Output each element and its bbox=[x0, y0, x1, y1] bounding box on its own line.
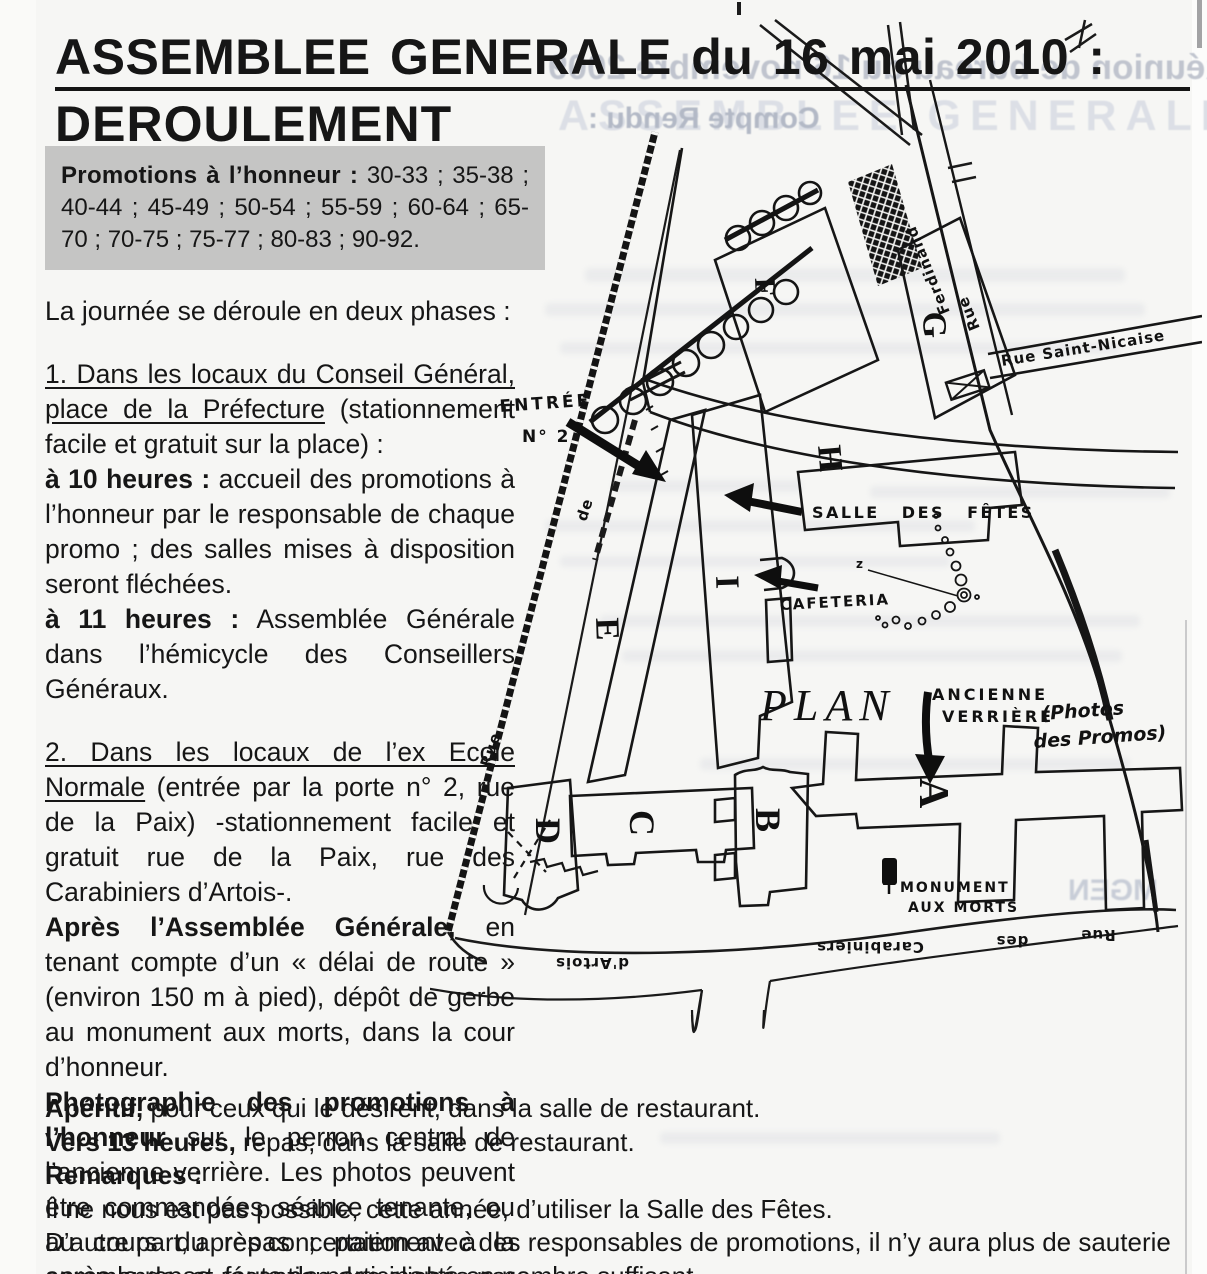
dotted-path bbox=[868, 514, 979, 629]
map-label-cafeteria: CAFETERIA bbox=[779, 590, 890, 614]
map-label-monument-2: AUX MORTS bbox=[908, 900, 1019, 916]
paragraph-aperitif: Apéritif, pour ceux qui le désirent, dan… bbox=[45, 1092, 1185, 1126]
remarque-1: Il ne nous est pas possible, cette année… bbox=[45, 1193, 1185, 1227]
apres-ag-head: Après l’Assemblée Générale, bbox=[45, 912, 456, 942]
map-label-entree-n2: N° 2 bbox=[522, 427, 570, 447]
document-title: ASSEMBLEE GENERALE du 16 mai 2010 : DERO… bbox=[55, 28, 1190, 153]
promotions-label: Promotions à l’honneur : bbox=[61, 162, 358, 189]
street-label-bottom-rue: Rue bbox=[1080, 926, 1115, 944]
building-letter-e: E bbox=[588, 617, 626, 641]
building-h-band-outer bbox=[642, 378, 1178, 452]
map-label-monument-1: MONUMENT bbox=[900, 880, 1010, 896]
street-label-bottom-carabiniers: Carabiniers bbox=[816, 938, 924, 956]
street-label-bottom-des: des bbox=[996, 932, 1029, 950]
time-11h: à 11 heures : bbox=[45, 604, 239, 634]
aperitif-head: Apéritif, bbox=[45, 1093, 143, 1123]
map-label-verriere-1: ANCIENNE bbox=[932, 685, 1048, 704]
vers13h-rest: repas, dans la salle de restaurant. bbox=[236, 1127, 635, 1157]
paragraph-phase2: 2. Dans les locaux de l’ex Ecole Normale… bbox=[45, 735, 515, 910]
map-label-photos-2: des Promos) bbox=[1033, 722, 1167, 753]
courtyard-west-wall bbox=[643, 148, 682, 382]
paragraph-10h: à 10 heures : accueil des promotions à l… bbox=[45, 462, 515, 602]
paragraph-phase1: 1. Dans les locaux du Conseil Général, p… bbox=[45, 357, 515, 462]
scan-artifact-tick bbox=[737, 2, 741, 15]
building-letter-a: A bbox=[910, 778, 956, 809]
street-bottom-carabiniers bbox=[430, 909, 1178, 1032]
building-letter-f: F bbox=[748, 277, 782, 296]
map-label-salle: SALLE DES FÊTES bbox=[812, 503, 1035, 522]
building-f bbox=[715, 208, 878, 412]
title-line2: DEROULEMENT bbox=[55, 95, 1190, 153]
scan-left-margin bbox=[0, 0, 36, 1274]
aperitif-rest: pour ceux qui le désirent, dans la salle… bbox=[143, 1093, 760, 1123]
remarque-2: D’autre part, après concertation avec de… bbox=[45, 1226, 1185, 1274]
verriere-down-arrow-icon bbox=[915, 692, 945, 784]
map-label-verriere-2: VERRIÈRE bbox=[942, 707, 1054, 726]
building-letter-g: G bbox=[915, 311, 953, 339]
street-label-paix-de: de bbox=[573, 496, 597, 523]
cafeteria-arrow-icon bbox=[754, 565, 818, 589]
tree-rows bbox=[590, 182, 821, 433]
vers13h-head: Vers 13 heures, bbox=[45, 1127, 236, 1157]
scanned-document-page: Réunion de bureau du 16 novembre 2009 AS… bbox=[0, 0, 1207, 1274]
buildings bbox=[484, 148, 1182, 910]
salle-arrow-icon bbox=[724, 483, 802, 512]
building-letter-h: H bbox=[810, 443, 849, 473]
building-d bbox=[504, 780, 578, 910]
promotions-box: Promotions à l’honneur : 30-33 ; 35-38 ;… bbox=[45, 146, 545, 270]
map-label-photos-1: (Photos bbox=[1041, 697, 1125, 725]
hand-drawn-map: ENTRÉE N° 2 SALLE DES FÊTES CAFETERIA PL… bbox=[430, 18, 1202, 1040]
monument-icon bbox=[882, 858, 897, 894]
map-z-mark: z bbox=[856, 557, 863, 571]
paragraph-13h: Vers 13 heures, repas, dans la salle de … bbox=[45, 1126, 1185, 1160]
map-label-plan: PLAN bbox=[759, 681, 896, 730]
hatched-block bbox=[848, 164, 922, 286]
building-letter-b: B bbox=[748, 808, 788, 832]
title-line1: ASSEMBLEE GENERALE du 16 mai 2010 : bbox=[55, 28, 1190, 91]
remarques-heading: Remarques : bbox=[45, 1159, 1185, 1193]
building-letter-d: D bbox=[528, 818, 568, 844]
paragraph-apres-ag: Après l’Assemblée Générale, en tenant co… bbox=[45, 910, 515, 1085]
paragraph-intro: La journée se déroule en deux phases : bbox=[45, 294, 515, 329]
street-label-bottom-artois: d'Artois bbox=[555, 954, 629, 972]
street-label-ferdinand-rue: Rue bbox=[954, 294, 984, 334]
building-letter-c: C bbox=[622, 810, 662, 836]
time-10h: à 10 heures : bbox=[45, 464, 210, 494]
bottom-block: Apéritif, pour ceux qui le désirent, dan… bbox=[45, 1092, 1185, 1274]
paragraph-11h: à 11 heures : Assemblée Générale dans l’… bbox=[45, 602, 515, 707]
building-letter-i: I bbox=[708, 575, 745, 590]
